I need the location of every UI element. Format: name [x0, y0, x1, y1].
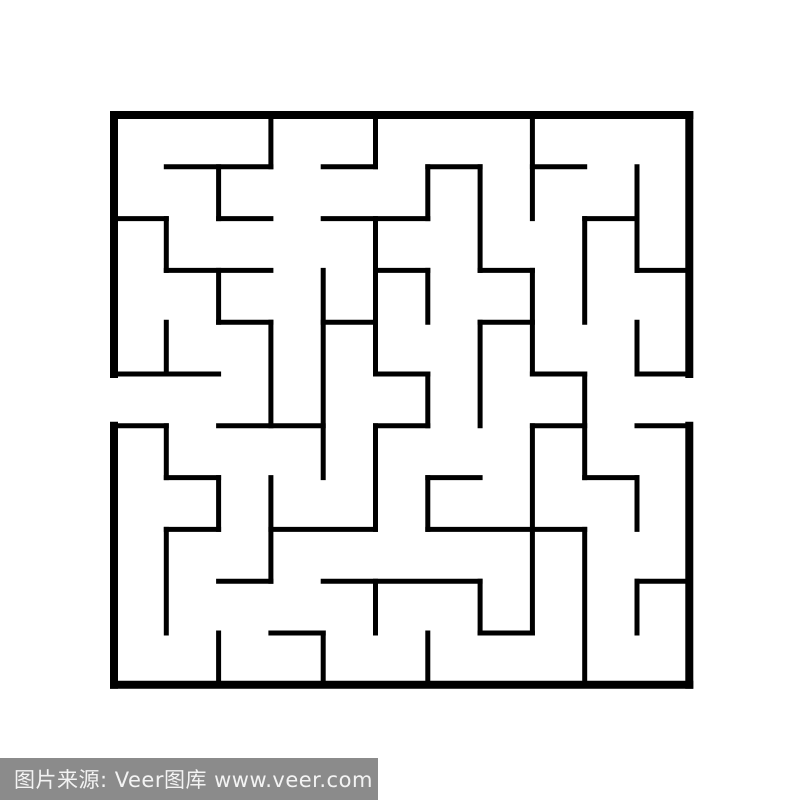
maze-svg: [0, 0, 800, 800]
watermark-bar: 图片来源: Veer图库 www.veer.com: [0, 758, 378, 800]
stock-image-page: 图片来源: Veer图库 www.veer.com: [0, 0, 800, 800]
watermark-text: 图片来源: Veer图库 www.veer.com: [14, 764, 373, 794]
